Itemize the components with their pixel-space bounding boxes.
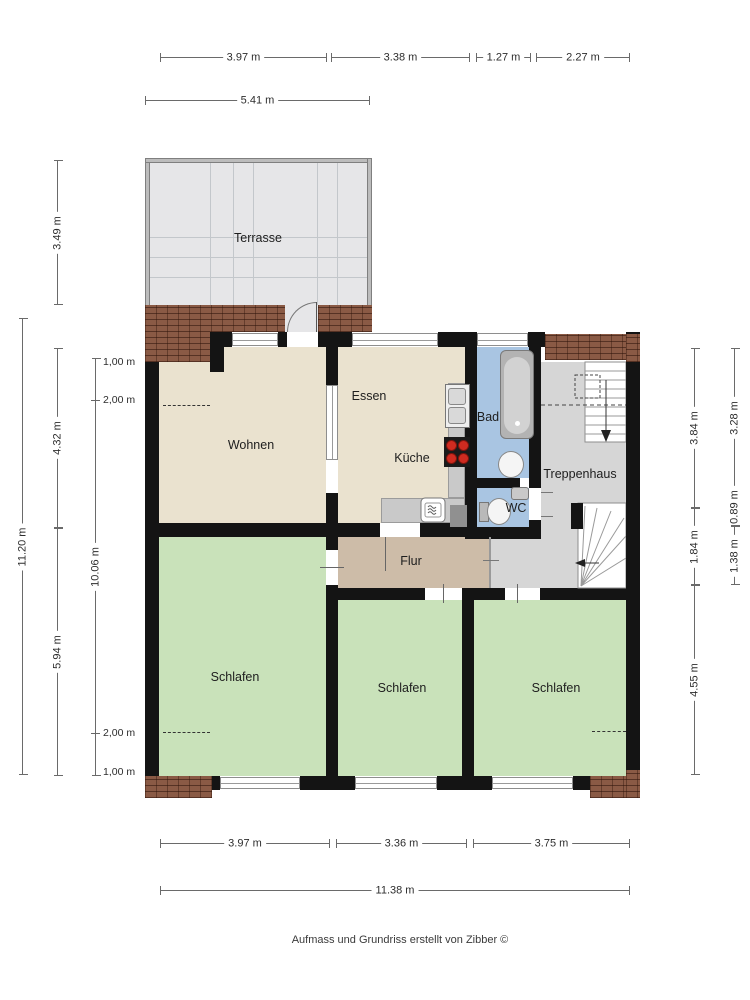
wall-bottom: [300, 776, 355, 790]
dim-left-lower: 5.94 m: [57, 528, 58, 776]
entry-landing: [490, 537, 541, 588]
wall-schlafen-mid-right: [462, 600, 474, 776]
dim-label: 3.97 m: [224, 837, 266, 850]
dim-right-outer-1: 3.28 m: [734, 348, 735, 488]
brick-band-terrace-left: [145, 305, 285, 332]
dim-label: 4.55 m: [688, 659, 701, 701]
wall-flur-schlafen: [462, 588, 505, 600]
dim-top-4: 2.27 m: [536, 57, 630, 58]
terrace-grid-line: [150, 257, 367, 258]
room-label-wc: WC: [500, 501, 532, 515]
room-label-treppenhaus: Treppenhaus: [530, 467, 630, 481]
door-tick: [517, 584, 518, 603]
terrace-grid-line: [337, 163, 338, 305]
upper-stairs: [541, 362, 626, 442]
brick-band-top-right: [545, 334, 626, 360]
dim-label: 1.27 m: [483, 51, 525, 64]
room-label-schlafen-left: Schlafen: [195, 670, 275, 684]
window-wohnen-top: [232, 333, 278, 346]
room-label-kueche: Küche: [372, 451, 452, 465]
dim-label: 3.97 m: [223, 51, 265, 64]
dim-tick: [91, 733, 100, 734]
dim-right-outer-2: 0.89 m: [734, 488, 735, 526]
wall-bottom: [573, 776, 590, 790]
window-schlafen-right: [492, 777, 573, 789]
height-mark: 2,00 m: [103, 727, 135, 739]
brick-band-terrace-right: [318, 305, 372, 332]
room-label-schlafen-right: Schlafen: [516, 681, 596, 695]
dim-label: 3.38 m: [380, 51, 422, 64]
brick-corner-left-top: [145, 332, 212, 362]
height-mark: 1,00 m: [103, 356, 135, 368]
stove-burner: [458, 440, 469, 451]
wall-step-wohnen: [210, 332, 224, 372]
height-mark: 1,00 m: [103, 766, 135, 778]
dim-label: 3.84 m: [688, 407, 701, 449]
height-line-schlafen-left: [163, 732, 210, 733]
entry-door-line: [489, 537, 491, 588]
room-label-flur: Flur: [371, 554, 451, 568]
winder-stairs: [571, 503, 626, 588]
room-label-wohnen: Wohnen: [211, 438, 291, 452]
dim-right-outer-3: 1.38 m: [734, 526, 735, 585]
dim-label: 0.89 m: [728, 486, 741, 528]
stove-burner: [458, 453, 469, 464]
wall-wohnen-schlafen: [145, 523, 380, 537]
dim-label: 3.36 m: [381, 837, 423, 850]
terrace-grid-line: [317, 163, 318, 305]
door-schlafen-right: [505, 588, 540, 600]
door-leaf: [316, 302, 317, 332]
dim-left-upper: 4.32 m: [57, 348, 58, 528]
sink-basin: [448, 407, 466, 424]
window-schlafen-left: [220, 777, 300, 789]
dim-left-inner: 10.06 m: [95, 358, 96, 776]
dim-bottom-3: 3.75 m: [473, 843, 630, 844]
dim-bottom-1: 3.97 m: [160, 843, 330, 844]
room-schlafen-left: [159, 537, 326, 776]
dim-bottom-2: 3.36 m: [336, 843, 467, 844]
window-schlafen-middle: [355, 777, 437, 789]
terrace-door-opening: [287, 332, 318, 347]
room-wohnen: [159, 347, 326, 523]
wall-top: [278, 332, 287, 347]
wall-right: [626, 332, 640, 790]
dishwasher-icon: [420, 497, 446, 523]
sink-basin: [448, 388, 466, 405]
bathtub-drain: [515, 421, 520, 426]
door-tick: [483, 560, 499, 561]
dim-label: 2.27 m: [562, 51, 604, 64]
terrace-grid-line: [150, 277, 367, 278]
dim-right-inner-3: 4.55 m: [694, 585, 695, 775]
dim-tick: [91, 400, 100, 401]
wall-schlafen-left: [326, 585, 338, 776]
room-label-bad: Bad: [468, 410, 508, 424]
dim-right-inner-1: 3.84 m: [694, 348, 695, 508]
dim-label: 11.20 m: [16, 523, 29, 570]
dim-bottom-total: 11.38 m: [160, 890, 630, 891]
wall-schlafen-left: [326, 537, 338, 550]
dim-top-1: 3.97 m: [160, 57, 327, 58]
height-mark: 2,00 m: [103, 394, 135, 406]
door-kueche-flur: [380, 523, 420, 537]
dim-left-total: 11.20 m: [22, 318, 23, 775]
dim-top-5-41: 5.41 m: [145, 100, 370, 101]
height-line-wohnen: [163, 405, 210, 406]
room-label-schlafen-middle: Schlafen: [362, 681, 442, 695]
wall-bottom: [437, 776, 492, 790]
wall-wc-flur: [465, 527, 541, 539]
room-label-terrasse: Terrasse: [218, 231, 298, 245]
dim-label: 3.75 m: [531, 837, 573, 850]
wall-flur-schlafen: [338, 588, 425, 600]
wall-left: [145, 332, 159, 790]
dim-label: 1.38 m: [728, 535, 741, 577]
dim-label: 1.84 m: [688, 526, 701, 568]
room-label-essen: Essen: [329, 389, 409, 403]
toilet-icon: [498, 451, 524, 478]
dim-label: 5.41 m: [237, 94, 279, 107]
dim-label: 10.06 m: [89, 543, 102, 591]
brick-corner-right-top: [626, 334, 640, 362]
dim-label: 3.28 m: [728, 397, 741, 439]
dim-label: 5.94 m: [51, 631, 64, 673]
dim-label: 11.38 m: [372, 884, 419, 897]
terrace-grid-line: [210, 163, 211, 305]
dim-right-inner-2: 1.84 m: [694, 508, 695, 585]
terrace-wall-top: [145, 158, 372, 163]
brick-corner-right-wall: [626, 770, 640, 798]
wall-bottom: [212, 776, 220, 790]
floor-plan-canvas: Terrasse: [0, 0, 750, 1000]
dim-top-3: 1.27 m: [476, 57, 531, 58]
brick-corner-left-bottom: [145, 776, 212, 798]
kitchen-appliance-block: [450, 505, 467, 527]
sink-icon: [511, 487, 529, 500]
dim-label: 4.32 m: [51, 417, 64, 459]
height-line-schlafen-right: [592, 731, 626, 732]
door-tick: [320, 567, 344, 568]
window-essen-top: [352, 333, 438, 346]
dim-label: 3.49 m: [51, 212, 64, 254]
dim-top-2: 3.38 m: [331, 57, 470, 58]
door-tick: [443, 584, 444, 603]
window-bad-top: [477, 333, 528, 346]
wall-wohnen-essen: [326, 332, 338, 385]
stove-burner: [446, 440, 457, 451]
footer-credit: Aufmass und Grundriss erstellt von Zibbe…: [160, 934, 640, 946]
dim-left-terrace: 3.49 m: [57, 160, 58, 305]
